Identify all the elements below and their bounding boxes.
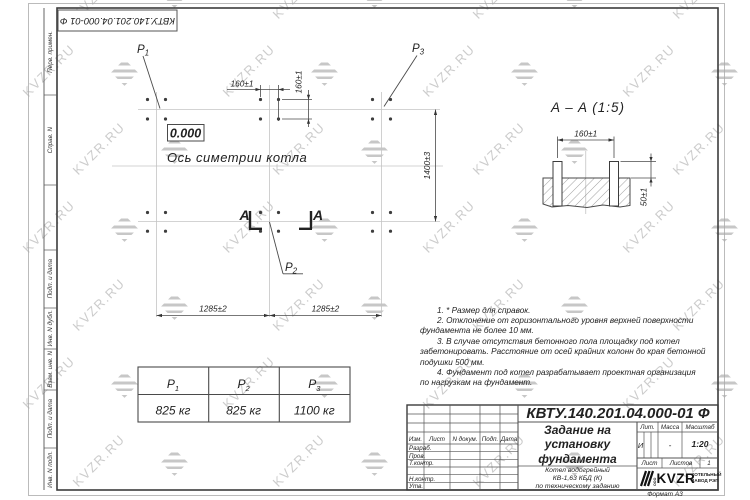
anchor-dot <box>277 230 280 233</box>
section-dimension-arrows <box>558 138 653 182</box>
anchor-dot <box>164 117 167 120</box>
anchor-dot <box>259 230 262 233</box>
title-block-doc-number: КВТУ.140.201.04.000-01 Ф <box>518 405 718 422</box>
anchor-dot <box>146 230 149 233</box>
anchor-dot <box>259 117 262 120</box>
scale-value: 1:20 <box>682 437 718 451</box>
sheet-label: Лист <box>637 460 662 468</box>
col-data: Дата <box>500 435 518 444</box>
logo-caption-line: КОТЕЛЬНЫЙ <box>692 472 722 478</box>
lit-label: Лит. <box>637 423 658 432</box>
anchor-dot <box>146 98 149 101</box>
title-line: Задание на <box>518 423 637 437</box>
dim-1285-right-label: 1285±2 <box>312 304 340 314</box>
row-razrab: Разраб. <box>409 445 431 452</box>
logo-caption-line: ЗАВОД РЭП <box>692 478 722 484</box>
kvzr-logo-text: KVZR <box>657 471 696 486</box>
section-letter-left: A <box>238 207 249 223</box>
title-line: установку <box>518 437 637 451</box>
note-line: 2. Отклонение от горизонтального уровня … <box>420 316 720 326</box>
section-letter-right: A <box>312 207 323 223</box>
kvzr-logo-caption: КОТЕЛЬНЫЙ ЗАВОД РЭП <box>692 472 722 483</box>
kvzr-coil-icon <box>641 471 653 486</box>
dim-1400-label: 1400±3 <box>422 151 432 179</box>
lit-value: И <box>637 438 644 452</box>
note-line: 3. В случае отсутствия бетонного пола пл… <box>420 337 720 347</box>
note-line: подушки 500 мм. <box>420 358 720 368</box>
anchor-dot <box>371 98 374 101</box>
anchor-dot <box>371 117 374 120</box>
table-header-p3: P3 <box>308 377 321 393</box>
row-prov: Пров. <box>409 453 425 460</box>
doc-number-rotated: КВТУ.140.201.04.000-01 Ф <box>58 10 177 31</box>
anchor-dot <box>146 211 149 214</box>
dim-1285-left-label: 1285±2 <box>199 304 227 314</box>
table-value-p2: 825 кг <box>226 404 261 418</box>
symmetry-axis-label: Ось симетрии котла <box>167 150 307 165</box>
sheets-value: 1 <box>700 460 718 468</box>
drawing-sheet: KVZR.RUKVZR.RUKVZR.RUKVZR.RUKVZR.RUKVZR.… <box>0 0 750 500</box>
table-header-p1: P1 <box>167 377 179 393</box>
plan-dimensions <box>157 85 436 316</box>
subtitle-line: по техническому заданию <box>518 483 637 491</box>
scale-label: Масштаб <box>682 423 718 432</box>
anchor-bolt-dots <box>146 98 392 233</box>
notes-block: 1. * Размер для справок. 2. Отклонение о… <box>420 306 720 389</box>
table-value-p3: 1100 кг <box>294 404 335 418</box>
anchor-bolt-right <box>610 162 619 207</box>
note-line: 1. * Размер для справок. <box>420 306 720 316</box>
mass-label: Масса <box>658 423 682 432</box>
anchor-dot <box>164 98 167 101</box>
row-nkontr: Н.контр. <box>409 476 435 483</box>
margin-label-vzam-inv: Взам. инв. N <box>44 349 57 390</box>
anchor-dot <box>389 211 392 214</box>
margin-label-podp-data-1: Подп. и дата <box>44 250 57 308</box>
col-list: Лист <box>424 435 450 444</box>
anchor-dot <box>259 98 262 101</box>
dimension-arrows <box>157 88 438 317</box>
row-utv: Утв. <box>409 483 423 490</box>
margin-label-perv-primen: Перв. примен. <box>44 8 57 95</box>
margin-label-podp-data-2: Подп. и дата <box>44 390 57 448</box>
title-block-subtitle: Котел водогрейный КВ-1,63 КБД (К) по тех… <box>518 467 637 490</box>
note-line: фундамента не более 10 мм. <box>420 326 720 336</box>
col-podp: Подп. <box>480 435 500 444</box>
row-tkontr: Т.контр. <box>409 460 434 467</box>
col-izm: Изм. <box>407 435 424 444</box>
note-line: по нагрузкам на фундамент. <box>420 378 720 388</box>
anchor-dot <box>371 230 374 233</box>
anchor-dot <box>259 211 262 214</box>
anchor-dot <box>389 117 392 120</box>
section-cut-marks <box>249 211 312 229</box>
load-label-p2: P2 <box>285 262 298 276</box>
load-label-p1: P1 <box>137 44 149 58</box>
section-dim-160-label: 160±1 <box>574 129 597 139</box>
section-dim-50-label: 50±1 <box>639 188 649 206</box>
anchor-dot <box>164 211 167 214</box>
margin-label-sprav-n: Справ. N <box>44 95 57 185</box>
plan-view <box>112 56 443 318</box>
subtitle-line: Котел водогрейный <box>518 467 637 475</box>
mass-value: - <box>658 438 682 452</box>
anchor-dot <box>277 211 280 214</box>
table-header-p2: P2 <box>238 377 251 393</box>
table-value-p1: 825 кг <box>156 404 191 418</box>
anchor-dot <box>164 230 167 233</box>
margin-label-inv-podl: Инв. N подл. <box>44 448 57 490</box>
note-line: забетонировать. Расстояние от осей крайн… <box>420 347 720 357</box>
col-ndokum: N докум. <box>450 435 480 444</box>
load-label-p3: P3 <box>412 43 425 57</box>
title-line: фундамента <box>518 452 637 466</box>
format-label: Формат А3 <box>630 490 700 499</box>
section-title: A – A (1:5) <box>550 100 625 115</box>
note-line: 4. Фундамент под котел разрабатывает про… <box>420 368 720 378</box>
title-block-title: Задание на установку фундамента <box>518 423 637 466</box>
margin-label-inv-dubl: Инв. N дубл. <box>44 308 57 349</box>
sheets-label: Листов <box>662 460 700 468</box>
dim-160-side-label: 160±1 <box>294 70 304 93</box>
subtitle-line: КВ-1,63 КБД (К) <box>518 475 637 483</box>
anchor-dot <box>371 211 374 214</box>
anchor-bolt-left <box>553 162 562 207</box>
anchor-dot <box>146 117 149 120</box>
anchor-dot <box>389 230 392 233</box>
dim-160-top-label: 160±1 <box>230 79 253 89</box>
elevation-mark: 0.000 <box>170 127 201 141</box>
